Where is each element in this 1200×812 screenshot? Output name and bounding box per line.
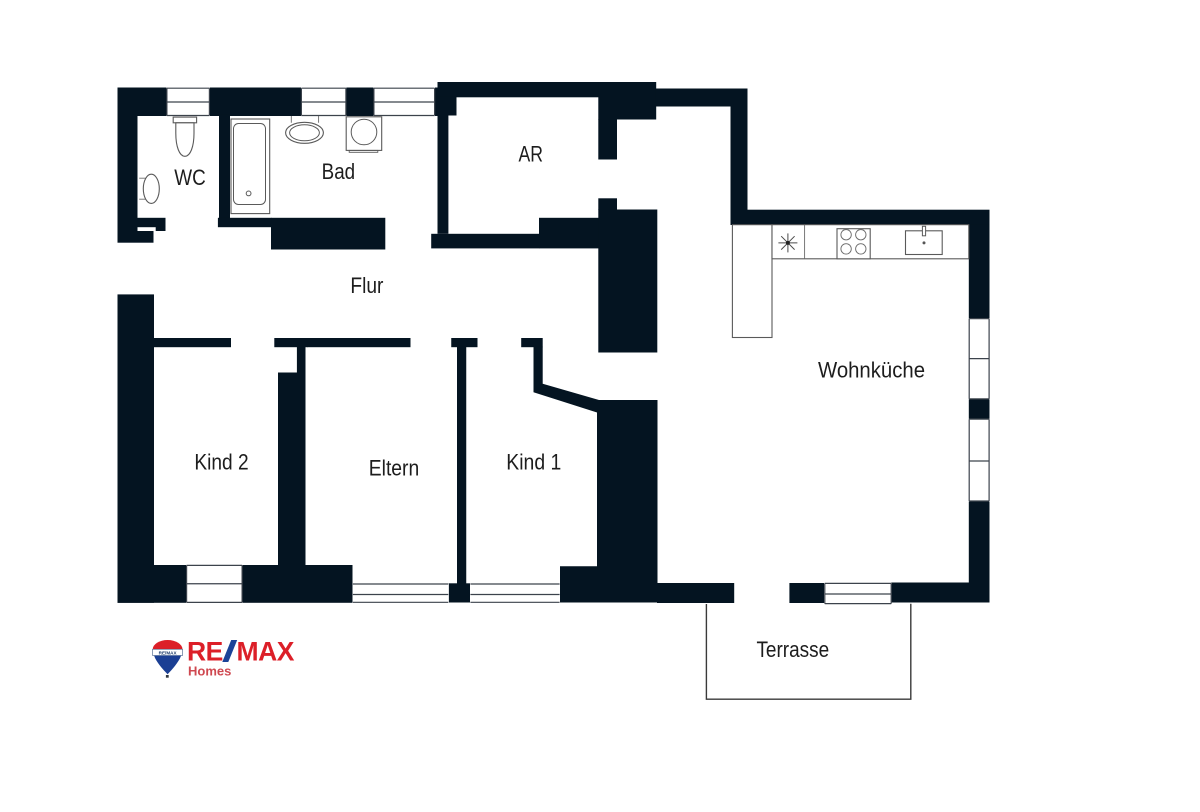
svg-text:Terrasse: Terrasse <box>756 637 829 662</box>
svg-text:Bad: Bad <box>322 159 356 184</box>
svg-text:Kind 1: Kind 1 <box>506 450 561 475</box>
svg-text:RE/MAX: RE/MAX <box>159 651 178 656</box>
svg-text:WC: WC <box>174 165 206 190</box>
svg-text:Flur: Flur <box>350 273 383 298</box>
svg-text:Kind 2: Kind 2 <box>194 450 248 475</box>
svg-text:Wohnküche: Wohnküche <box>818 358 925 383</box>
svg-text:RE: RE <box>187 637 223 667</box>
svg-text:AR: AR <box>519 142 544 167</box>
svg-text:Homes: Homes <box>188 664 231 679</box>
svg-text:Eltern: Eltern <box>369 456 419 481</box>
svg-text:MAX: MAX <box>237 637 295 667</box>
